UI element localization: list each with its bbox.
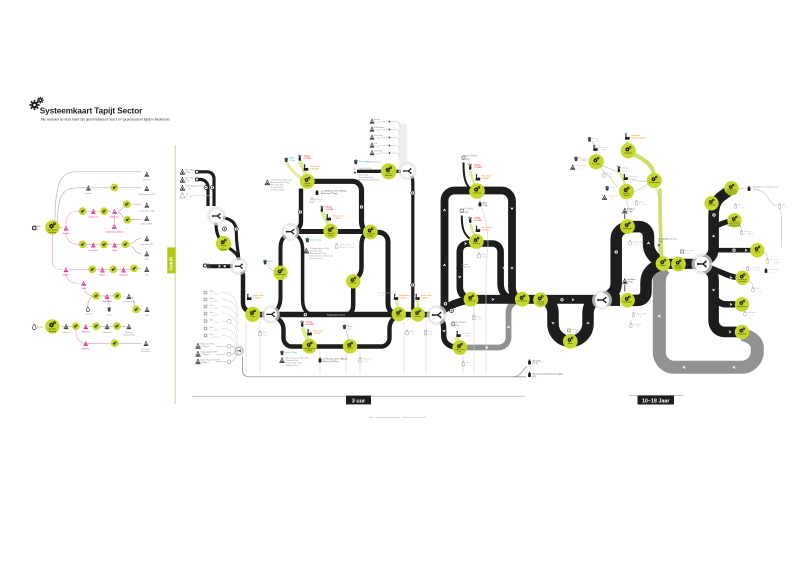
svg-text:170gr: 170gr	[463, 157, 470, 161]
svg-text:170kg: 170kg	[627, 211, 634, 213]
svg-text:Ammoniak: Ammoniak	[82, 330, 90, 333]
svg-text:Kunstmest: Kunstmest	[141, 350, 151, 353]
svg-text:Grondstof: Grondstof	[739, 280, 747, 283]
svg-text:Krakken: Krakken	[49, 232, 56, 234]
svg-text:Bitumen: Bitumen	[143, 179, 150, 182]
svg-text:1 ... gr: 1 ... gr	[769, 272, 775, 274]
svg-text:170kg: 170kg	[185, 172, 192, 174]
svg-text:Water 10kg: Water 10kg	[359, 160, 370, 163]
svg-text:17 gr: 17 gr	[410, 334, 415, 336]
svg-text:Lameren: Lameren	[350, 282, 357, 285]
svg-text:Winning: Winning	[49, 331, 56, 333]
svg-text:Opkrimp: Opkrimp	[220, 248, 226, 251]
svg-text:170g: 170g	[185, 180, 190, 182]
svg-text:Para-Xyleen: Para-Xyleen	[89, 249, 98, 252]
svg-text:2.5kg: 2.5kg	[290, 160, 296, 162]
svg-text:1 ... gr: 1 ... gr	[374, 120, 380, 123]
svg-text:Textiel rug: Textiel rug	[472, 242, 480, 245]
svg-text:Gebruik: Gebruik	[624, 194, 630, 197]
svg-text:1 ... gr: 1 ... gr	[374, 152, 380, 155]
svg-text:Ammoniak-baside 1kg: Ammoniak-baside 1kg	[358, 179, 379, 182]
svg-text:1 ... gr: 1 ... gr	[466, 365, 472, 367]
svg-text:1 ... gr: 1 ... gr	[374, 136, 380, 139]
svg-text:Alle waarden op deze kaart zij: Alle waarden op deze kaart zijn genormal…	[41, 117, 170, 121]
svg-text:170gr: 170gr	[658, 240, 663, 243]
svg-text:Bevochtigen: Bevochtigen	[276, 273, 285, 276]
svg-text:Hechten: Hechten	[415, 315, 421, 318]
svg-text:SBR: SBR	[145, 315, 150, 317]
svg-text:Tuften: Tuften	[250, 315, 255, 318]
svg-text:Spoelen: Spoelen	[347, 348, 353, 350]
svg-text:(0.29Mt): (0.29Mt)	[326, 208, 334, 211]
svg-text:1 ... MJel: 1 ... MJel	[598, 150, 607, 152]
svg-text:Chloor: Chloor	[81, 287, 86, 290]
svg-text:Plast: Plast	[107, 314, 112, 317]
svg-text:1 ... gr: 1 ... gr	[607, 197, 613, 200]
svg-text:Recycling: Recycling	[708, 205, 715, 207]
svg-text:Adipinezuur: Adipinezuur	[110, 215, 119, 218]
svg-text:Transport: Transport	[675, 267, 683, 270]
svg-text:1 ... gr: 1 ... gr	[748, 315, 754, 317]
svg-text:Propaan: Propaan	[85, 193, 93, 195]
svg-text:Vinylchloride: Vinylchloride	[102, 300, 112, 303]
svg-text:Schoonmaken: Schoonmaken	[649, 182, 660, 184]
svg-text:Methaan: Methaan	[62, 331, 70, 334]
svg-text:1 ... Mta: 1 ... Mta	[579, 159, 587, 162]
svg-text:Drogen: Drogen	[368, 235, 374, 238]
svg-text:0.2MJel: 0.2MJel	[421, 298, 429, 300]
svg-text:17 gr: 17 gr	[263, 335, 268, 337]
svg-text:Verleggen: Verleggen	[624, 151, 632, 154]
svg-text:1 ... gr: 1 ... gr	[606, 176, 612, 178]
svg-text:1 ... gr/m2: 1 ... gr/m2	[210, 336, 220, 338]
svg-text:Glycol: Glycol	[112, 250, 117, 252]
svg-text:1 ... gr: 1 ... gr	[738, 207, 744, 209]
svg-text:1 ... gr: 1 ... gr	[374, 128, 380, 131]
svg-text:1 ... gr/m2: 1 ... gr/m2	[210, 314, 220, 316]
svg-text:Textiel rug: Textiel rug	[473, 192, 481, 195]
svg-text:Verfstof 0.13gr: Verfstof 0.13gr	[271, 189, 285, 192]
svg-text:170kg: 170kg	[204, 264, 212, 268]
svg-text:1 ... gr: 1 ... gr	[186, 195, 192, 198]
svg-text:Water 170kg: Water 170kg	[285, 351, 298, 354]
svg-text:120kg/m2: 120kg/m2	[461, 266, 471, 268]
svg-text:1 ... Mta: 1 ... Mta	[622, 169, 630, 172]
svg-text:Tapijt leggen: Tapijt leggen	[623, 301, 633, 304]
svg-text:1 ... pF: 1 ... pF	[315, 201, 322, 203]
svg-text:Butadieen: Butadieen	[120, 274, 128, 277]
svg-text:1 ... MJel: 1 ... MJel	[629, 179, 638, 181]
svg-text:Ver. slepen: Ver. slepen	[592, 162, 600, 165]
svg-text:170gr: 170gr	[452, 323, 459, 327]
svg-text:Aardgas: Aardgas	[37, 326, 44, 329]
svg-text:6.2MJel: 6.2MJel	[482, 178, 490, 180]
svg-text:1 ... MJ/kg: 1 ... MJ/kg	[744, 234, 753, 236]
svg-text:Polypropyleen green: Polypropyleen green	[327, 315, 345, 317]
svg-text:1 ... gr: 1 ... gr	[753, 189, 759, 191]
svg-text:6.2MJel: 6.2MJel	[313, 333, 321, 335]
svg-text:Benzeen: Benzeen	[63, 233, 70, 235]
svg-text:170gr: 170gr	[483, 205, 488, 207]
svg-text:Afvalverwerking: Afvalverwerking	[729, 225, 741, 228]
svg-text:170gr: 170gr	[476, 318, 481, 320]
svg-text:Styreen: Styreen	[99, 274, 105, 277]
svg-text:Element Hard: Element Hard	[123, 301, 135, 304]
svg-text:3 uur: 3 uur	[352, 398, 366, 404]
svg-text:Systeemkaart Tapijt Sector: Systeemkaart Tapijt Sector	[40, 107, 143, 116]
svg-text:Bron : Systeemkaart tapijtsect: Bron : Systeemkaart tapijtsector · Creat…	[369, 416, 427, 419]
svg-text:Tapijt leggen: Tapijt leggen	[623, 227, 633, 230]
svg-text:6.45 MJel: 6.45 MJel	[310, 168, 320, 170]
svg-text:1 ... gr: 1 ... gr	[185, 187, 191, 190]
svg-text:1 ... gr/m2: 1 ... gr/m2	[210, 322, 220, 324]
svg-text:2.5l: 2.5l	[347, 329, 351, 331]
svg-text:1 ... gr: 1 ... gr	[639, 204, 645, 206]
svg-text:1 ...l: 1 ...l	[610, 190, 614, 192]
svg-text:Verven: Verven	[305, 184, 310, 187]
svg-text:Polyester (PE): Polyester (PE)	[140, 243, 153, 246]
svg-text:(2%): (2%)	[532, 376, 537, 378]
svg-text:(0.29Mt): (0.29Mt)	[474, 219, 482, 222]
svg-text:Afvalstromen: Afvalstromen	[727, 193, 737, 196]
svg-text:6.2 MJel: 6.2 MJel	[333, 218, 341, 220]
svg-text:Hoeveelheid: Hoeveelheid	[518, 301, 527, 303]
svg-text:Olie: Olie	[33, 227, 38, 231]
svg-text:Weggebruik: Weggebruik	[738, 332, 747, 335]
svg-text:Storten: Storten	[755, 251, 761, 254]
svg-text:Cyclohexaan: Cyclohexaan	[88, 216, 98, 218]
svg-text:Verfstof 0.1 gr: Verfstof 0.1 gr	[310, 257, 323, 260]
svg-text:PolyPropyleen (PP): PolyPropyleen (PP)	[138, 194, 156, 196]
svg-text:Terephthaalzuur/Butadie: Terephthaalzuur/Butadie	[105, 230, 123, 233]
svg-text:Gefaseerde storting/achtervang: Gefaseerde storting/achtervanging	[532, 373, 563, 376]
svg-text:1 ... Mta: 1 ... Mta	[592, 140, 600, 143]
svg-text:2l: 2l	[268, 264, 270, 266]
svg-text:1 ... gr/m2: 1 ... gr/m2	[210, 293, 220, 295]
svg-text:170gr: 170gr	[482, 257, 487, 259]
svg-text:Polyamide - (PA): Polyamide - (PA)	[139, 209, 154, 212]
svg-text:1 ... gr/m2: 1 ... gr/m2	[210, 329, 220, 331]
svg-text:Methaan (297mg): Methaan (297mg)	[323, 360, 339, 363]
svg-text:Water 2.5kg: Water 2.5kg	[310, 238, 322, 241]
svg-text:1 ... gr: 1 ... gr	[782, 207, 788, 209]
svg-text:Gebruik: Gebruik	[660, 264, 666, 267]
svg-text:Zwavel: Zwavel	[86, 313, 93, 315]
svg-text:1 ... gr: 1 ... gr	[633, 244, 639, 246]
svg-text:1 ... gr: 1 ... gr	[756, 291, 762, 293]
svg-text:1 ... gr: 1 ... gr	[575, 167, 581, 170]
svg-text:170kg: 170kg	[627, 281, 634, 283]
svg-text:1 ... MJel: 1 ... MJel	[461, 336, 470, 338]
svg-text:(0.29Mt): (0.29Mt)	[304, 157, 312, 160]
svg-text:0.2MJel: 0.2MJel	[400, 298, 408, 300]
svg-text:Nylon (PA66): Nylon (PA66)	[141, 223, 153, 226]
svg-text:rug: rug	[459, 350, 462, 353]
svg-text:Export: Export	[568, 342, 573, 345]
svg-text:Ethyleen: Ethyleen	[63, 274, 70, 277]
svg-text:(0.29Mt): (0.29Mt)	[474, 166, 482, 169]
svg-text:PU: PU	[145, 275, 148, 277]
svg-text:1 ... gr: 1 ... gr	[572, 332, 578, 334]
svg-text:(2.7%): (2.7%)	[532, 363, 538, 365]
svg-text:Melamine: Melamine	[82, 348, 89, 350]
svg-text:170gr: 170gr	[461, 210, 468, 214]
svg-text:weven: weven	[328, 235, 333, 237]
svg-text:1 ... gr/m2: 1 ... gr/m2	[210, 307, 220, 309]
svg-text:170kg/m2: 170kg/m2	[200, 362, 210, 364]
svg-text:10–18 Jaar: 10–18 Jaar	[642, 398, 670, 404]
svg-text:800kg 7.5 geld: 800kg 7.5 geld	[631, 137, 645, 139]
svg-text:Methaan (297mg): Methaan (297mg)	[339, 246, 355, 249]
svg-text:170kg/m2: 170kg/m2	[200, 346, 210, 348]
svg-text:1 ... pF: 1 ... pF	[363, 361, 370, 363]
svg-text:1 ... pF: 1 ... pF	[378, 295, 385, 297]
svg-text:Verfstof 0.1 gr: Verfstof 0.1 gr	[286, 364, 299, 367]
svg-text:PET: PET	[145, 259, 150, 261]
svg-text:Scheren: Scheren	[396, 315, 402, 318]
svg-text:1 ... gr: 1 ... gr	[374, 144, 380, 147]
svg-text:Getuft: Getuft	[169, 257, 174, 271]
svg-text:Bindhaadstof: Bindhaadstof	[123, 333, 135, 336]
svg-text:1 ... gr: 1 ... gr	[633, 326, 639, 328]
svg-text:Verven: Verven	[307, 349, 312, 352]
svg-text:Samenlassen: Samenlassen	[737, 306, 747, 308]
svg-text:17gr: 17gr	[428, 334, 432, 336]
svg-text:1 ... mg/kg: 1 ... mg/kg	[770, 262, 779, 264]
svg-text:1 ... gr: 1 ... gr	[685, 253, 691, 255]
svg-text:1 ... gr/m2: 1 ... gr/m2	[210, 300, 220, 302]
svg-text:6.2MJel: 6.2MJel	[482, 230, 490, 232]
svg-text:2.9 MJel: 2.9 MJel	[253, 298, 261, 300]
svg-text:CaCO3 167kg: CaCO3 167kg	[358, 168, 372, 170]
svg-text:(0.29Mt): (0.29Mt)	[306, 323, 314, 326]
svg-text:Textiel rug: Textiel rug	[467, 300, 475, 303]
svg-text:Aanmaak: Aanmaak	[385, 174, 392, 177]
svg-text:1 ... mg/kg: 1 ... mg/kg	[750, 270, 759, 272]
svg-text:1 ... gr: 1 ... gr	[636, 316, 642, 318]
svg-text:Transport: Transport	[537, 302, 545, 305]
svg-text:Waterstof: Waterstof	[103, 331, 112, 334]
svg-text:170kg/m2: 170kg/m2	[200, 354, 210, 356]
svg-text:Methaan (297mg): Methaan (297mg)	[321, 192, 338, 195]
